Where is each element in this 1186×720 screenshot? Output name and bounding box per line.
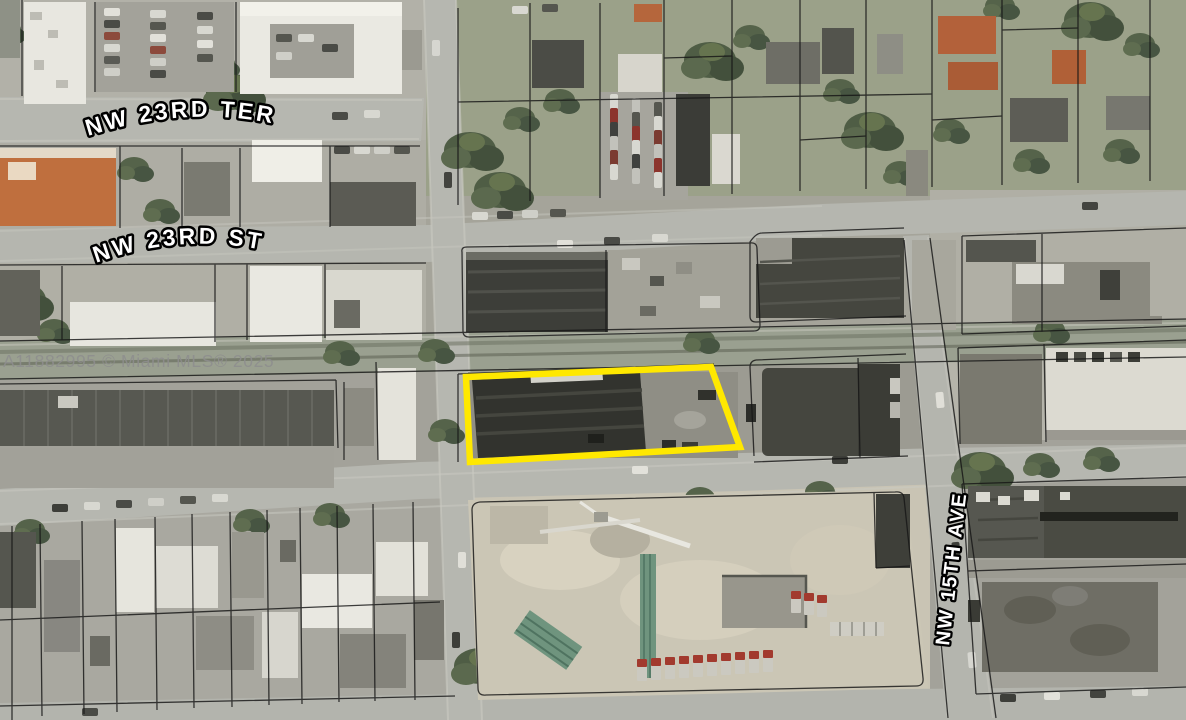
mls-watermark: A11882995 © Miami MLS® 2025 — [3, 351, 274, 371]
aerial-map-viewport[interactable]: NW 23RD TER NW 23RD ST NW 15TH AVE A1188… — [0, 0, 1186, 720]
aerial-map-canvas: NW 23RD TER NW 23RD ST NW 15TH AVE A1188… — [0, 0, 1186, 720]
